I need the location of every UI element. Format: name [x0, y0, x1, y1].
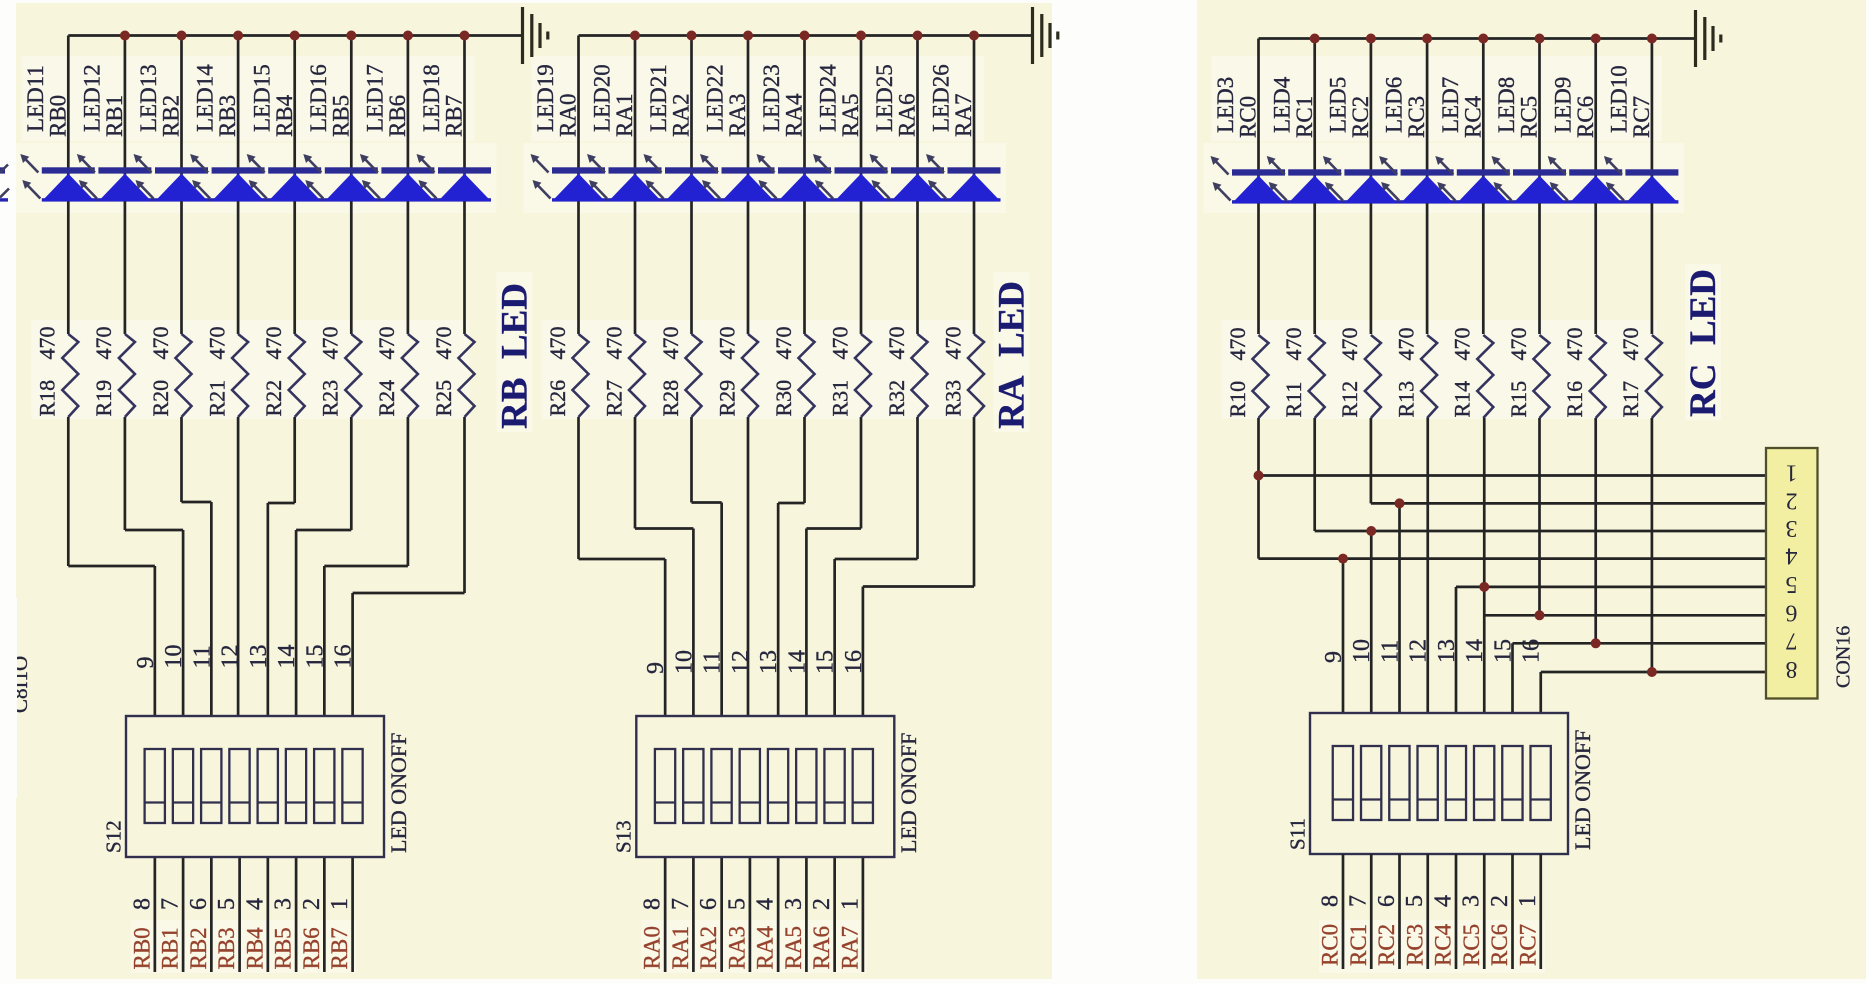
svg-text:LED10: LED10	[1606, 65, 1631, 133]
svg-text:R31: R31	[827, 380, 852, 417]
svg-text:R21: R21	[204, 380, 229, 417]
svg-text:470: 470	[1450, 328, 1475, 361]
svg-text:7: 7	[1346, 895, 1372, 907]
svg-text:RC5: RC5	[1517, 96, 1542, 138]
svg-text:14: 14	[784, 650, 810, 674]
svg-text:15: 15	[1490, 639, 1516, 663]
svg-text:R30: R30	[771, 380, 796, 417]
svg-text:6: 6	[186, 898, 212, 910]
svg-text:RB LED: RB LED	[495, 283, 536, 429]
svg-text:S11: S11	[1285, 818, 1309, 850]
svg-text:3: 3	[781, 898, 807, 910]
svg-text:1: 1	[1515, 895, 1541, 907]
svg-text:LED19: LED19	[533, 64, 558, 132]
svg-text:12: 12	[728, 650, 754, 674]
svg-text:LED26: LED26	[929, 64, 954, 132]
svg-text:RA1: RA1	[612, 94, 637, 137]
svg-text:RC3: RC3	[1402, 924, 1427, 966]
svg-text:8: 8	[640, 898, 666, 910]
svg-text:RB4: RB4	[242, 927, 267, 970]
svg-text:RA3: RA3	[725, 94, 750, 137]
svg-text:RC0: RC0	[1236, 96, 1261, 138]
svg-text:470: 470	[91, 327, 116, 360]
svg-text:11: 11	[189, 645, 215, 668]
svg-text:RB0: RB0	[129, 927, 154, 969]
svg-text:16: 16	[841, 650, 867, 674]
svg-text:14: 14	[1462, 639, 1488, 663]
svg-text:RB3: RB3	[214, 927, 239, 969]
svg-text:RC4: RC4	[1460, 95, 1485, 138]
svg-text:3: 3	[1786, 515, 1798, 541]
svg-text:LED7: LED7	[1438, 77, 1463, 133]
svg-text:10: 10	[1349, 639, 1375, 663]
svg-text:LED18: LED18	[419, 64, 444, 132]
svg-text:470: 470	[940, 327, 965, 360]
svg-text:470: 470	[148, 327, 173, 360]
svg-text:R15: R15	[1506, 381, 1531, 418]
svg-text:RA2: RA2	[669, 94, 694, 137]
svg-text:LED16: LED16	[306, 64, 331, 132]
svg-text:LED17: LED17	[362, 64, 387, 132]
svg-text:4: 4	[1430, 895, 1456, 907]
svg-text:LED23: LED23	[759, 64, 784, 132]
svg-text:LED ONOFF: LED ONOFF	[1570, 730, 1595, 850]
svg-text:12: 12	[218, 645, 244, 669]
svg-text:RC7: RC7	[1515, 924, 1540, 966]
svg-text:16: 16	[1519, 639, 1545, 663]
svg-text:15: 15	[302, 645, 328, 669]
svg-text:4: 4	[242, 898, 268, 910]
svg-text:470: 470	[204, 327, 229, 360]
svg-text:13: 13	[1434, 639, 1460, 663]
svg-text:S12: S12	[101, 820, 125, 853]
svg-text:RA6: RA6	[895, 94, 920, 137]
svg-text:RB0: RB0	[45, 95, 70, 137]
svg-text:470: 470	[431, 327, 456, 360]
svg-text:RC6: RC6	[1573, 96, 1598, 138]
svg-text:470: 470	[35, 327, 60, 360]
svg-text:3: 3	[271, 898, 297, 910]
svg-text:RC3: RC3	[1404, 96, 1429, 138]
svg-text:LED5: LED5	[1325, 77, 1350, 133]
svg-text:470: 470	[1281, 328, 1306, 361]
svg-text:RB5: RB5	[328, 95, 353, 137]
svg-text:R33: R33	[940, 380, 965, 417]
svg-text:RC0: RC0	[1318, 924, 1343, 966]
svg-text:3: 3	[1459, 895, 1485, 907]
svg-text:1: 1	[1786, 460, 1798, 486]
svg-text:16: 16	[331, 645, 357, 669]
svg-text:RC1: RC1	[1292, 96, 1317, 138]
svg-text:R19: R19	[91, 380, 116, 417]
svg-text:5: 5	[1402, 895, 1428, 907]
svg-text:470: 470	[1393, 328, 1418, 361]
svg-text:2: 2	[809, 898, 835, 910]
svg-text:14: 14	[274, 645, 300, 669]
svg-text:R24: R24	[374, 380, 399, 417]
svg-text:RC4: RC4	[1431, 923, 1456, 966]
svg-text:10: 10	[161, 645, 187, 669]
svg-text:RB2: RB2	[159, 95, 184, 137]
svg-text:LED4: LED4	[1269, 76, 1294, 133]
svg-text:RB6: RB6	[385, 95, 410, 137]
svg-text:2: 2	[1786, 487, 1798, 513]
svg-text:6: 6	[696, 898, 722, 910]
svg-text:8: 8	[1317, 895, 1343, 907]
svg-text:RA1: RA1	[668, 926, 693, 969]
svg-text:8: 8	[1786, 656, 1798, 682]
svg-text:R32: R32	[884, 380, 909, 417]
svg-text:RA0: RA0	[556, 94, 581, 137]
svg-text:RB2: RB2	[186, 927, 211, 969]
svg-text:RB1: RB1	[158, 927, 183, 969]
svg-text:9: 9	[643, 662, 669, 674]
svg-text:470: 470	[658, 327, 683, 360]
svg-text:RA3: RA3	[724, 926, 749, 969]
svg-text:RC LED: RC LED	[1683, 269, 1724, 417]
svg-text:11: 11	[1377, 640, 1403, 663]
svg-text:470: 470	[827, 327, 852, 360]
svg-text:470: 470	[374, 327, 399, 360]
svg-text:LED25: LED25	[872, 64, 897, 132]
svg-text:RA4: RA4	[782, 93, 807, 137]
svg-text:RB4: RB4	[272, 94, 297, 137]
svg-text:10: 10	[671, 650, 697, 674]
svg-text:LED22: LED22	[703, 64, 728, 132]
svg-text:RB7: RB7	[327, 927, 352, 969]
svg-text:470: 470	[1618, 328, 1643, 361]
svg-text:RC1: RC1	[1346, 924, 1371, 966]
svg-text:5: 5	[1786, 571, 1798, 597]
svg-text:LED21: LED21	[646, 64, 671, 132]
svg-text:LED8: LED8	[1494, 77, 1519, 133]
svg-text:RC2: RC2	[1374, 924, 1399, 966]
svg-text:12: 12	[1406, 639, 1432, 663]
svg-text:13: 13	[756, 650, 782, 674]
svg-text:R28: R28	[658, 380, 683, 417]
svg-text:LED ONOFF: LED ONOFF	[386, 733, 411, 853]
svg-text:1: 1	[327, 898, 353, 910]
svg-text:5: 5	[724, 898, 750, 910]
svg-text:LED13: LED13	[136, 64, 161, 132]
svg-text:R25: R25	[431, 380, 456, 417]
svg-text:RC5: RC5	[1459, 924, 1484, 966]
svg-text:470: 470	[261, 327, 286, 360]
svg-text:R11: R11	[1281, 382, 1306, 418]
svg-text:470: 470	[884, 327, 909, 360]
svg-text:S13: S13	[612, 820, 636, 853]
svg-text:4: 4	[753, 898, 779, 910]
svg-text:LED24: LED24	[816, 64, 841, 132]
svg-text:13: 13	[246, 645, 272, 669]
svg-text:R12: R12	[1337, 381, 1362, 418]
svg-text:LED11: LED11	[23, 65, 48, 132]
svg-text:RA5: RA5	[838, 94, 863, 137]
svg-text:11: 11	[700, 651, 726, 674]
svg-text:R10: R10	[1225, 381, 1250, 418]
svg-text:R22: R22	[261, 380, 286, 417]
svg-text:R17: R17	[1618, 381, 1643, 418]
svg-text:LED3: LED3	[1213, 77, 1238, 133]
svg-text:LED ONOFF: LED ONOFF	[896, 733, 921, 853]
svg-text:RA0: RA0	[640, 926, 665, 969]
svg-text:LED20: LED20	[590, 64, 615, 132]
svg-text:9: 9	[1321, 651, 1347, 663]
svg-text:RC6: RC6	[1487, 924, 1512, 966]
svg-text:R27: R27	[601, 380, 626, 417]
svg-text:2: 2	[1487, 895, 1513, 907]
svg-text:9: 9	[133, 657, 159, 669]
svg-text:6: 6	[1374, 895, 1400, 907]
svg-text:LED12: LED12	[79, 64, 104, 132]
svg-text:R14: R14	[1450, 381, 1475, 418]
svg-text:R16: R16	[1562, 381, 1587, 418]
svg-text:470: 470	[318, 327, 343, 360]
svg-text:470: 470	[771, 327, 796, 360]
svg-text:470: 470	[1337, 328, 1362, 361]
svg-text:7: 7	[1786, 627, 1798, 653]
svg-text:470: 470	[714, 327, 739, 360]
svg-text:R23: R23	[318, 380, 343, 417]
svg-text:470: 470	[545, 327, 570, 360]
svg-text:LED14: LED14	[193, 64, 218, 132]
svg-text:2: 2	[299, 898, 325, 910]
svg-text:470: 470	[601, 327, 626, 360]
svg-text:R18: R18	[35, 380, 60, 417]
svg-text:4: 4	[1786, 543, 1798, 569]
svg-text:RC2: RC2	[1348, 96, 1373, 138]
svg-text:6: 6	[1786, 599, 1798, 625]
svg-text:RA7: RA7	[951, 94, 976, 137]
svg-text:RA4: RA4	[753, 926, 778, 970]
svg-text:RB6: RB6	[299, 927, 324, 969]
svg-text:RB5: RB5	[271, 927, 296, 969]
svg-text:R13: R13	[1393, 381, 1418, 418]
svg-text:LED6: LED6	[1382, 77, 1407, 133]
svg-text:RB3: RB3	[215, 95, 240, 137]
svg-text:R29: R29	[714, 380, 739, 417]
svg-text:RB1: RB1	[102, 95, 127, 137]
svg-text:RC7: RC7	[1629, 96, 1654, 138]
svg-text:470: 470	[1225, 328, 1250, 361]
svg-text:470: 470	[1506, 328, 1531, 361]
svg-text:RA5: RA5	[781, 926, 806, 969]
svg-text:1: 1	[837, 898, 863, 910]
svg-text:LED9: LED9	[1550, 77, 1575, 133]
svg-text:R26: R26	[545, 380, 570, 417]
svg-text:R20: R20	[148, 380, 173, 417]
svg-text:8: 8	[129, 898, 155, 910]
svg-text:7: 7	[158, 898, 184, 910]
svg-text:RA7: RA7	[837, 926, 862, 969]
svg-text:5: 5	[214, 898, 240, 910]
svg-text:15: 15	[813, 650, 839, 674]
svg-text:7: 7	[668, 898, 694, 910]
svg-text:470: 470	[1562, 328, 1587, 361]
svg-text:RA6: RA6	[809, 926, 834, 969]
svg-text:RB7: RB7	[442, 95, 467, 137]
svg-text:LED15: LED15	[249, 64, 274, 132]
svg-text:CON16: CON16	[1833, 626, 1855, 688]
svg-text:RA LED: RA LED	[992, 281, 1033, 429]
svg-text:RA2: RA2	[696, 926, 721, 969]
